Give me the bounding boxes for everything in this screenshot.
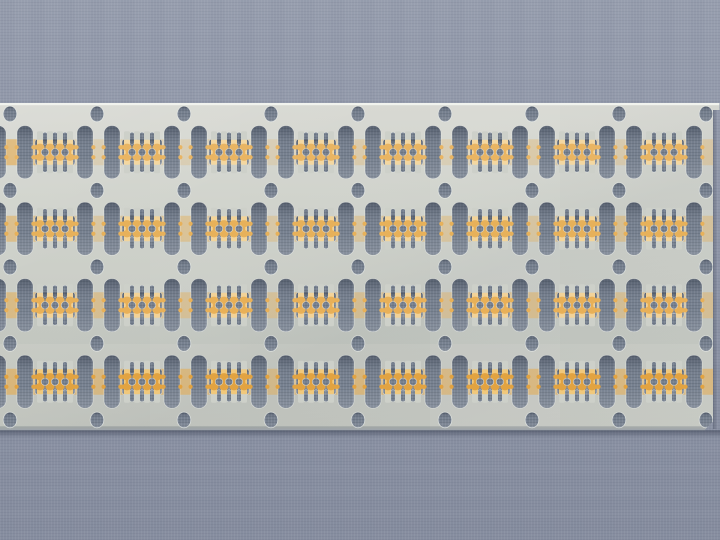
lead-pattern-cell [120,284,163,326]
lead-pattern-cell [294,131,337,173]
lead-pattern-cell [207,361,250,403]
lead-pattern-cell [381,361,424,403]
lead-pattern-cell [555,208,598,250]
lead-pattern-cell [468,131,511,173]
lead-pattern-cell [381,284,424,326]
lead-pattern-cell [33,131,76,173]
lead-pattern-cell [642,208,685,250]
lead-pattern-cell [207,131,250,173]
lead-pattern-cell [468,284,511,326]
lead-pattern-cell [294,361,337,403]
lead-pattern-cell [33,361,76,403]
lead-pattern-cell [33,208,76,250]
lead-pattern-cell [555,131,598,173]
lead-pattern-cell [555,284,598,326]
lead-pattern-cell [207,208,250,250]
lead-pattern-cell [120,208,163,250]
lead-pattern-cell [381,208,424,250]
lead-pattern-cell [120,361,163,403]
lead-pattern-cell [294,208,337,250]
lead-pattern-cell [207,284,250,326]
lead-pattern-cell [381,131,424,173]
lead-pattern-cell [468,361,511,403]
lead-frame-strip-svg [0,0,720,540]
lead-pattern-cell [642,131,685,173]
lead-pattern-cell [555,361,598,403]
lead-pattern-cell [294,284,337,326]
lead-pattern-cell [120,131,163,173]
lead-frame-photo [0,0,720,540]
lead-pattern-cell [33,284,76,326]
lead-pattern-cell [642,284,685,326]
lead-pattern-cell [642,361,685,403]
lead-pattern-cell [468,208,511,250]
